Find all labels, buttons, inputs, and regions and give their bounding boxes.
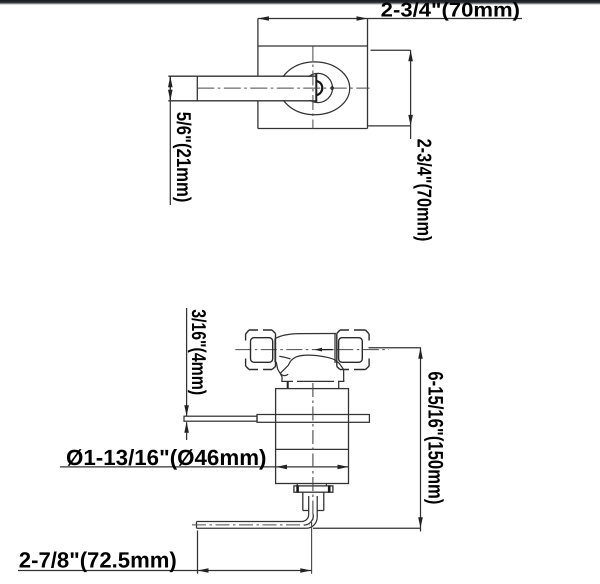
svg-text:2-7/8"(72.5mm): 2-7/8"(72.5mm): [19, 548, 177, 573]
svg-text:5/6"(21mm): 5/6"(21mm): [172, 112, 194, 203]
svg-text:2-3/4"(70mm): 2-3/4"(70mm): [413, 139, 435, 242]
svg-text:Ø1-13/16"(Ø46mm): Ø1-13/16"(Ø46mm): [66, 445, 267, 470]
svg-text:3/16"(4mm): 3/16"(4mm): [187, 309, 209, 395]
svg-text:6-15/16"(150mm): 6-15/16"(150mm): [424, 371, 447, 504]
svg-text:2-3/4"(70mm): 2-3/4"(70mm): [381, 0, 520, 21]
